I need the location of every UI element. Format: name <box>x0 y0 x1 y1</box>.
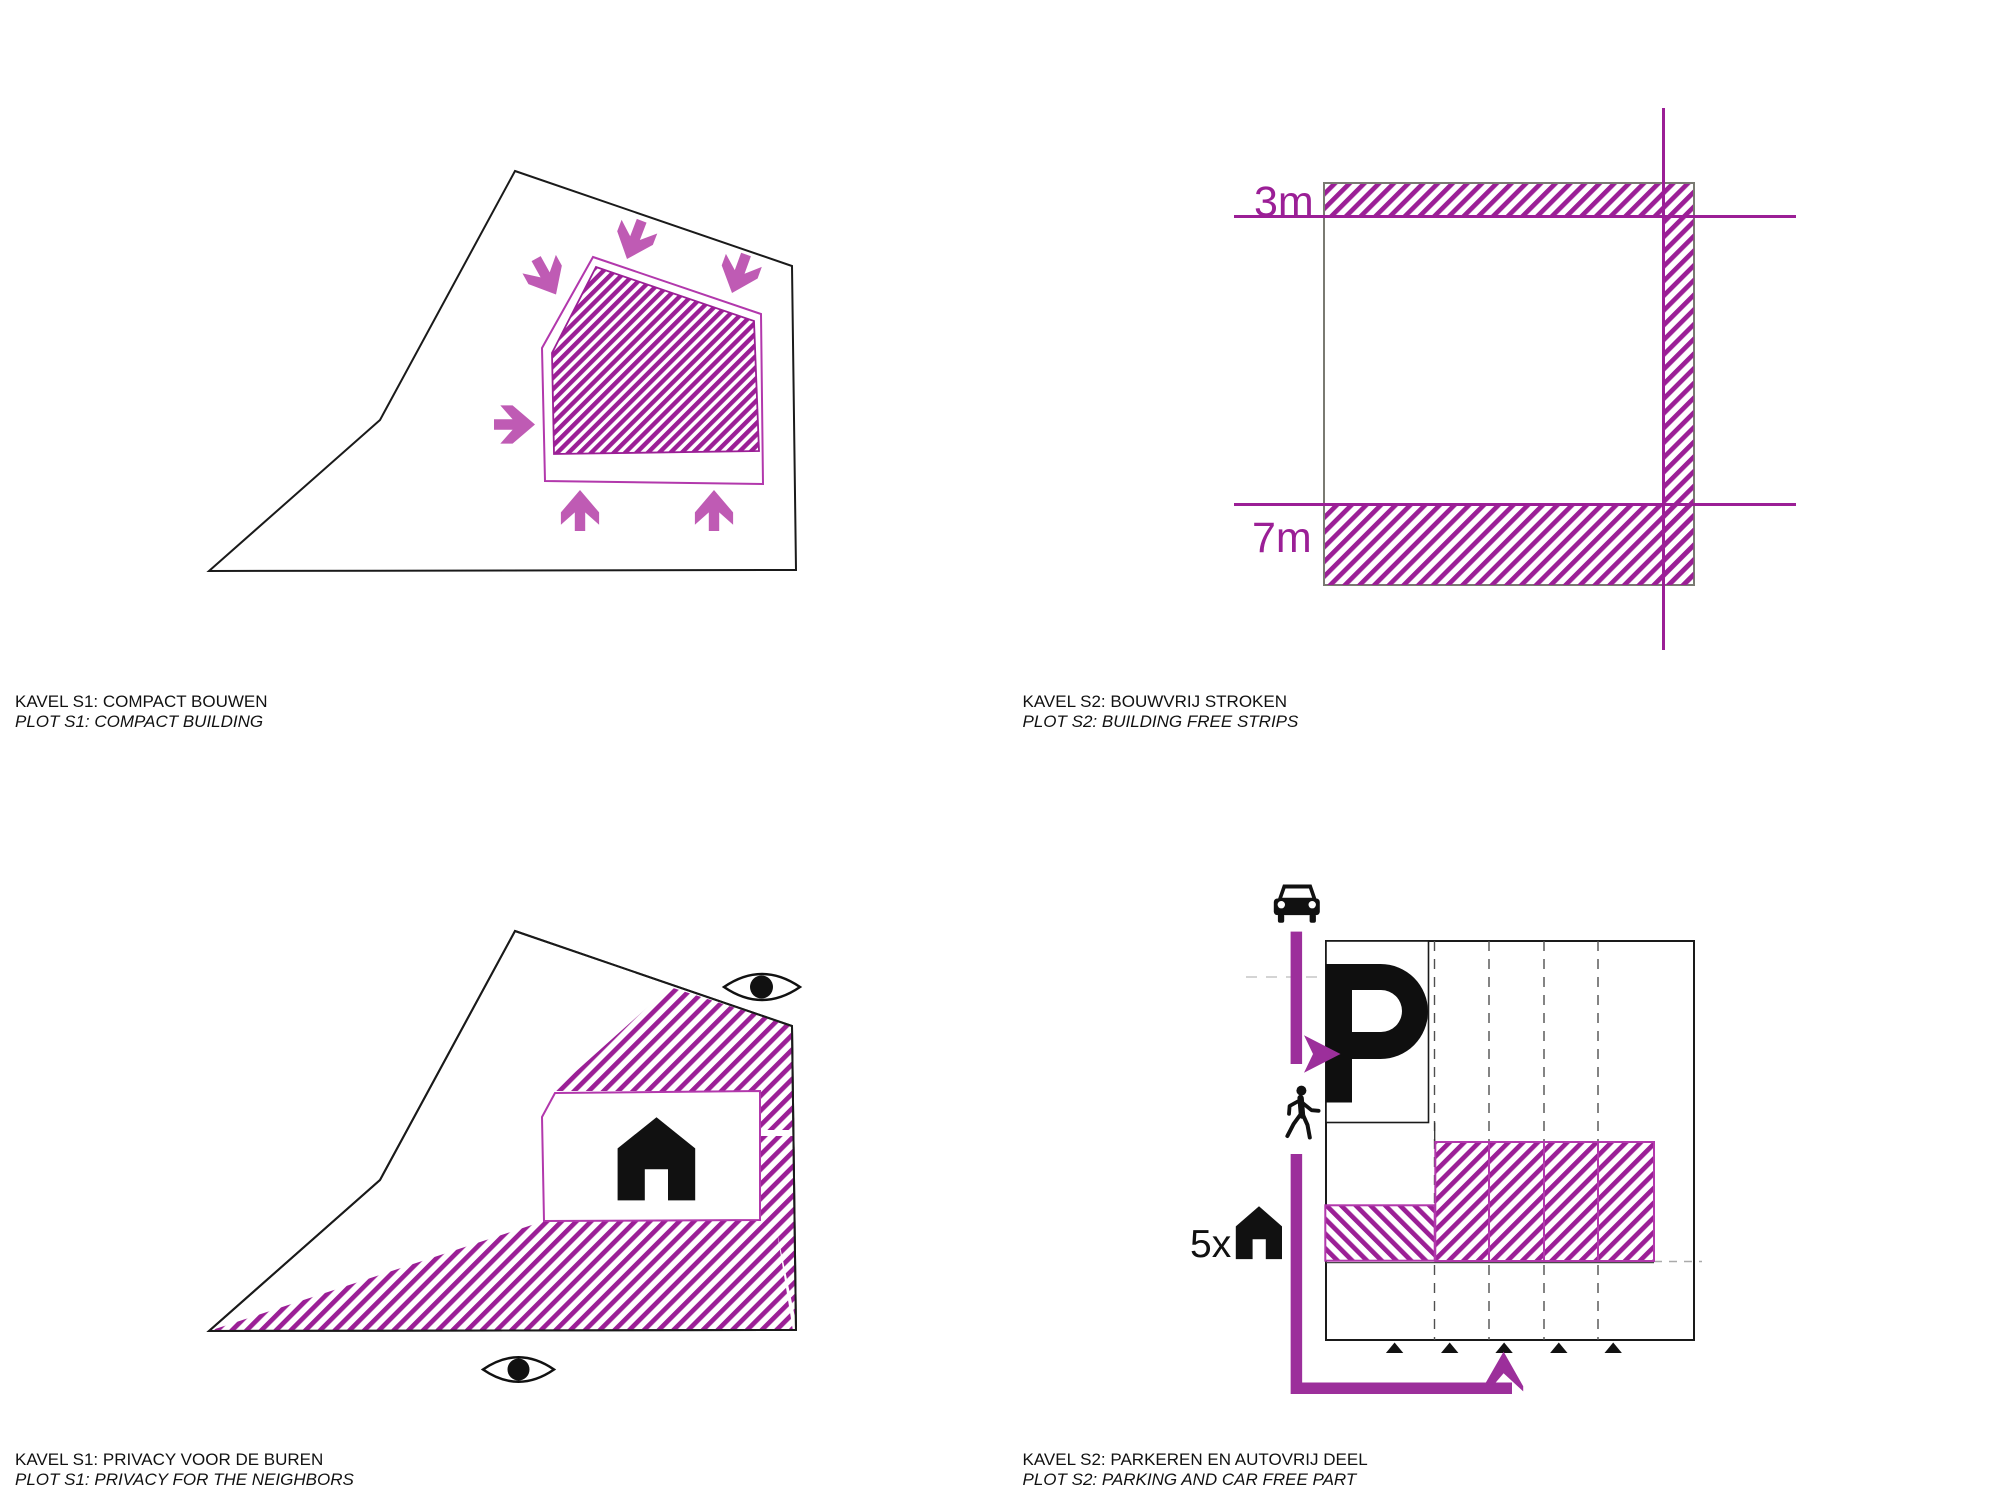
svg-text:PLOT S2: BUILDING FREE STRIPS: PLOT S2: BUILDING FREE STRIPS <box>1023 712 1300 731</box>
svg-text:5x: 5x <box>1190 1223 1232 1266</box>
svg-text:KAVEL S1: COMPACT BOUWEN: KAVEL S1: COMPACT BOUWEN <box>15 692 268 711</box>
svg-text:PLOT S2: PARKING AND CAR FREE: PLOT S2: PARKING AND CAR FREE PART <box>1023 1470 1358 1489</box>
svg-text:KAVEL S2: PARKEREN EN AUTOVRIJ: KAVEL S2: PARKEREN EN AUTOVRIJ DEEL <box>1023 1450 1368 1469</box>
svg-text:PLOT S1: COMPACT BUILDING: PLOT S1: COMPACT BUILDING <box>15 712 263 731</box>
svg-text:KAVEL S1: PRIVACY VOOR DE BURE: KAVEL S1: PRIVACY VOOR DE BUREN <box>15 1450 323 1469</box>
svg-text:7m: 7m <box>1252 514 1312 562</box>
svg-text:PLOT S1: PRIVACY FOR THE NEIGH: PLOT S1: PRIVACY FOR THE NEIGHBORS <box>15 1470 354 1489</box>
svg-text:3m: 3m <box>1254 178 1314 226</box>
svg-text:KAVEL S2: BOUWVRIJ STROKEN: KAVEL S2: BOUWVRIJ STROKEN <box>1023 692 1288 711</box>
